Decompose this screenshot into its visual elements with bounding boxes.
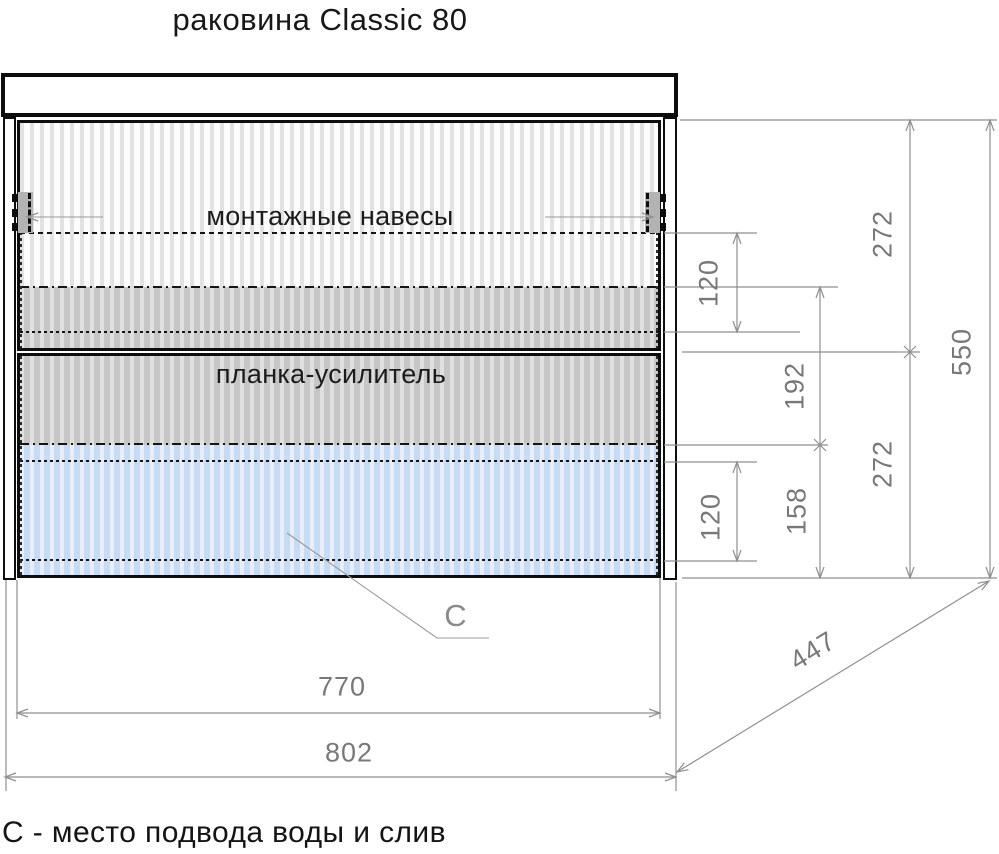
- dim-550: 550: [947, 328, 978, 376]
- side-panel-right: [663, 117, 677, 580]
- line-strip-top-dashdot: [20, 286, 658, 288]
- countertop: [1, 73, 678, 117]
- side-panel-left: [3, 117, 16, 580]
- upper-drawer-front: [17, 120, 661, 351]
- hanger-tab: [660, 194, 666, 202]
- footnote: С - место подвода воды и слив: [2, 816, 446, 850]
- line-hanger-bottom-dashed: [20, 232, 658, 234]
- junction-cross: [814, 439, 826, 451]
- dim-272-upper: 272: [868, 210, 899, 258]
- drawer-edge-dotted-right: [656, 356, 658, 575]
- hanger-tab: [12, 209, 18, 217]
- fluted-zone-gray-upper: [20, 287, 658, 348]
- junction-cross: [904, 346, 916, 358]
- page-title: раковина Classic 80: [0, 2, 640, 38]
- connection-marker: С: [444, 598, 467, 634]
- dim-158: 158: [782, 487, 813, 535]
- dim-192: 192: [780, 362, 811, 410]
- drawing-canvas: раковина Classic 80 монтажные навесы п: [0, 0, 999, 854]
- fluted-zone-blue: [20, 445, 658, 575]
- hanger-dashed-line: [28, 193, 31, 232]
- line-strip-bottom-dashdot: [20, 443, 658, 445]
- dim-447: 447: [784, 625, 841, 677]
- hanger-tab: [12, 223, 18, 231]
- label-mounting-hangers: монтажные навесы: [160, 201, 500, 232]
- dim-line-447: [677, 581, 989, 772]
- mounting-hanger-right: [645, 192, 660, 233]
- hanger-dashed-line: [646, 193, 649, 232]
- mounting-hanger-left: [18, 192, 33, 233]
- drawer-edge-dotted-left: [20, 232, 22, 348]
- line-drain-bottom-dotted: [20, 559, 658, 561]
- line-offset-120-dotted: [20, 331, 658, 333]
- dim-770: 770: [318, 672, 366, 703]
- drawer-edge-dotted-right: [656, 232, 658, 348]
- drawer-edge-dotted-left: [20, 356, 22, 575]
- dim-120-upper: 120: [694, 259, 725, 307]
- dim-272-lower: 272: [868, 440, 899, 488]
- dim-802: 802: [325, 738, 373, 769]
- hanger-tab: [660, 209, 666, 217]
- hanger-tab: [12, 194, 18, 202]
- line-drain-top-dotted: [20, 460, 658, 462]
- hanger-tab: [660, 223, 666, 231]
- dim-120-lower: 120: [696, 493, 727, 541]
- label-reinforcement-strip: планка-усилитель: [161, 359, 501, 390]
